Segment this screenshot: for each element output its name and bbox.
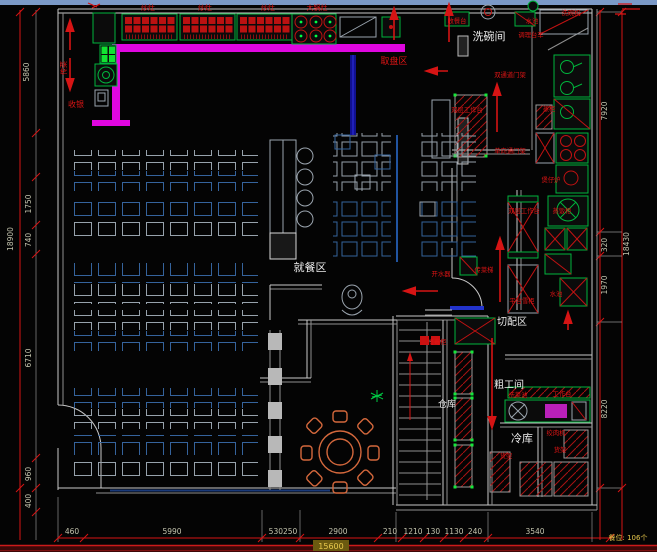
dim-240: 240 bbox=[468, 527, 483, 536]
label-shelf-2: 货架 bbox=[554, 445, 567, 454]
dim-400: 400 bbox=[24, 494, 33, 509]
label-cutting-area: 切配区 bbox=[497, 316, 527, 328]
dim-960: 960 bbox=[24, 467, 33, 482]
label-double-door-rack: 双通道门架 bbox=[494, 70, 526, 79]
sterilizer-unit bbox=[455, 318, 495, 344]
dim-18430: 18430 bbox=[622, 232, 631, 256]
small-station bbox=[382, 17, 400, 37]
label-stove-2: 炒灶 bbox=[198, 3, 212, 12]
dim-5860: 5860 bbox=[22, 62, 31, 81]
serving-pass-counter bbox=[92, 44, 405, 126]
claypot-stove-unit bbox=[556, 133, 588, 163]
bar-counter bbox=[270, 140, 313, 259]
label-prep-trolley: 调理台车 bbox=[518, 30, 543, 39]
label-dining-area: 就餐区 bbox=[294, 260, 327, 274]
food-lift-highlight bbox=[545, 404, 567, 418]
dim-1750: 1750 bbox=[24, 194, 33, 213]
label-steam-cabinet: 蒸柜 bbox=[543, 104, 556, 113]
dim-total-15600: 15600 bbox=[318, 542, 343, 551]
dim-320: 320 bbox=[600, 238, 609, 253]
dim-1130: 1130 bbox=[444, 527, 463, 536]
dim-1210: 1210 bbox=[403, 527, 422, 536]
label-dishwasher: 洗碗机 bbox=[562, 8, 582, 17]
label-big-wok: 大锅灶 bbox=[307, 3, 328, 12]
plant-icon bbox=[371, 390, 383, 402]
label-food-pass: 传菜 bbox=[59, 61, 68, 75]
dim-210: 210 bbox=[383, 527, 398, 536]
label-collect-table: 收餐台 bbox=[448, 16, 467, 25]
dim-130: 130 bbox=[426, 527, 441, 536]
stove-bank-1 bbox=[122, 14, 177, 40]
table-clusters bbox=[333, 133, 476, 258]
dim-3540: 3540 bbox=[525, 527, 544, 536]
dimension-right: 7920 320 18430 1970 8220 bbox=[596, 8, 631, 540]
corridor-island-2 bbox=[508, 265, 538, 313]
label-sink-mid: 水池 bbox=[550, 289, 563, 298]
corridor-island-1 bbox=[508, 196, 538, 258]
dim-7920: 7920 bbox=[600, 101, 609, 120]
dim-8220: 8220 bbox=[600, 399, 609, 418]
label-cashier: 收银 bbox=[68, 99, 84, 109]
cook-line-equipment bbox=[93, 1, 538, 106]
label-oneway-door-rack: 单向通门架 bbox=[494, 146, 526, 155]
label-rice-steamer: 蒸饭柜 bbox=[553, 206, 572, 215]
dim-1970: 1970 bbox=[600, 275, 609, 294]
dim-5990: 5990 bbox=[162, 527, 181, 536]
door-lintel-blue bbox=[450, 306, 484, 310]
label-sterilizer: 消毒柜 bbox=[428, 337, 447, 346]
floor-plan-canvas: 5860 18900 1750 740 6710 960 400 7920 32… bbox=[0, 0, 657, 552]
label-claypot-stove: 煲仔炉 bbox=[542, 175, 561, 184]
dim-530250: 530250 bbox=[269, 527, 298, 536]
round-table bbox=[301, 411, 379, 493]
big-wok-stove bbox=[292, 14, 336, 44]
worktable-top bbox=[340, 17, 376, 37]
label-shelf-1: 货架 bbox=[500, 451, 513, 460]
roughwork-machine-row bbox=[505, 400, 590, 422]
cad-floorplan-screenshot: 5860 18900 1750 740 6710 960 400 7920 32… bbox=[0, 0, 657, 552]
label-roughwork-room: 粗工间 bbox=[494, 378, 524, 391]
label-stove-1: 炒灶 bbox=[141, 3, 155, 12]
label-cold-storage: 冷库 bbox=[511, 432, 533, 445]
label-food-lift: 传菜梯 bbox=[475, 265, 494, 274]
seat-count-note: 餐位: 106个 bbox=[609, 533, 648, 542]
stove-bank-3 bbox=[237, 14, 292, 40]
stove-bank-2 bbox=[180, 14, 235, 40]
label-veg-sink: 洗菜池 bbox=[509, 390, 529, 399]
dimension-left: 5860 18900 1750 740 6710 960 400 bbox=[6, 8, 40, 540]
label-water-boiler: 开水器 bbox=[432, 269, 452, 278]
label-counter-freezer: 平台雪柜 bbox=[509, 296, 534, 305]
dim-740: 740 bbox=[24, 233, 33, 248]
dim-6710: 6710 bbox=[24, 348, 33, 367]
dining-booths bbox=[68, 150, 258, 476]
label-double-worktable-2: 双层工作台 bbox=[508, 206, 539, 215]
washbasin-icon bbox=[342, 285, 362, 315]
label-dishwash-room: 洗碗间 bbox=[473, 29, 506, 43]
label-double-worktable-1: 双层工作台 bbox=[451, 105, 482, 114]
staircase bbox=[399, 322, 441, 500]
dim-2900: 2900 bbox=[328, 527, 347, 536]
label-worktable: 工作台 bbox=[553, 389, 572, 398]
label-warehouse: 仓库 bbox=[438, 398, 456, 410]
label-stove-3: 炒灶 bbox=[261, 3, 275, 12]
label-plate-pickup: 取盘区 bbox=[380, 55, 407, 67]
kitchen-door-arc bbox=[452, 278, 482, 308]
dim-460: 460 bbox=[65, 527, 80, 536]
dim-18900: 18900 bbox=[6, 227, 15, 251]
label-meat-grinder: 绞肉机 bbox=[547, 428, 567, 437]
label-sink-top: 水池 bbox=[526, 16, 539, 25]
